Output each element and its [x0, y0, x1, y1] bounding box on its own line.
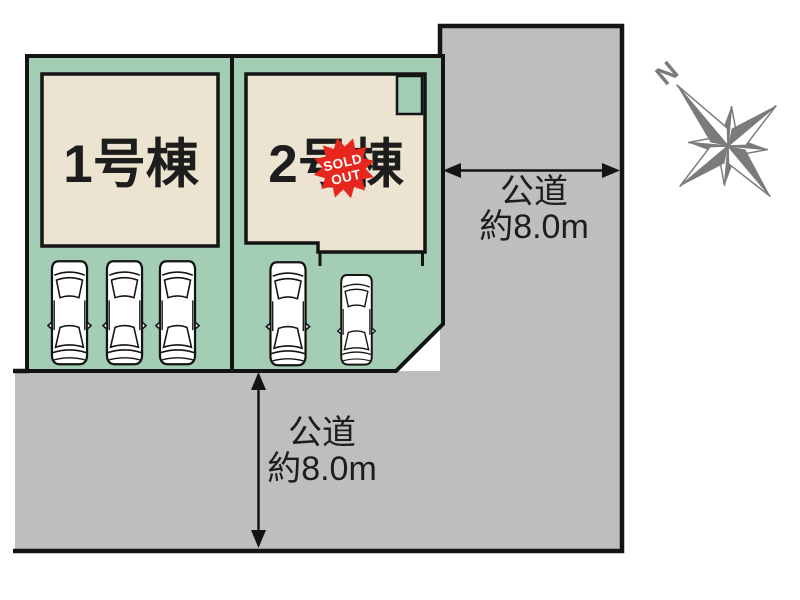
building-2-notch [397, 76, 422, 114]
site-plan-canvas: 1号棟 2号棟 SOLD OUT 公道 約8.0m 公道 約8.0m [0, 0, 800, 600]
site-plan: 1号棟 2号棟 SOLD OUT 公道 約8.0m 公道 約8.0m [0, 0, 800, 600]
road-right-name: 公道 [500, 173, 568, 211]
car-icon [103, 261, 146, 364]
car-icon [338, 275, 376, 365]
compass-north-label: N [650, 55, 684, 91]
car-icon [156, 261, 199, 364]
car-icon [48, 261, 91, 364]
road-bottom-width: 約8.0m [267, 450, 377, 488]
compass-rose-icon: N [609, 21, 800, 237]
building-1-label: 1号棟 [63, 135, 199, 194]
road-right-width: 約8.0m [479, 208, 589, 246]
road-bottom-name: 公道 [288, 414, 356, 452]
car-icon [266, 262, 309, 365]
